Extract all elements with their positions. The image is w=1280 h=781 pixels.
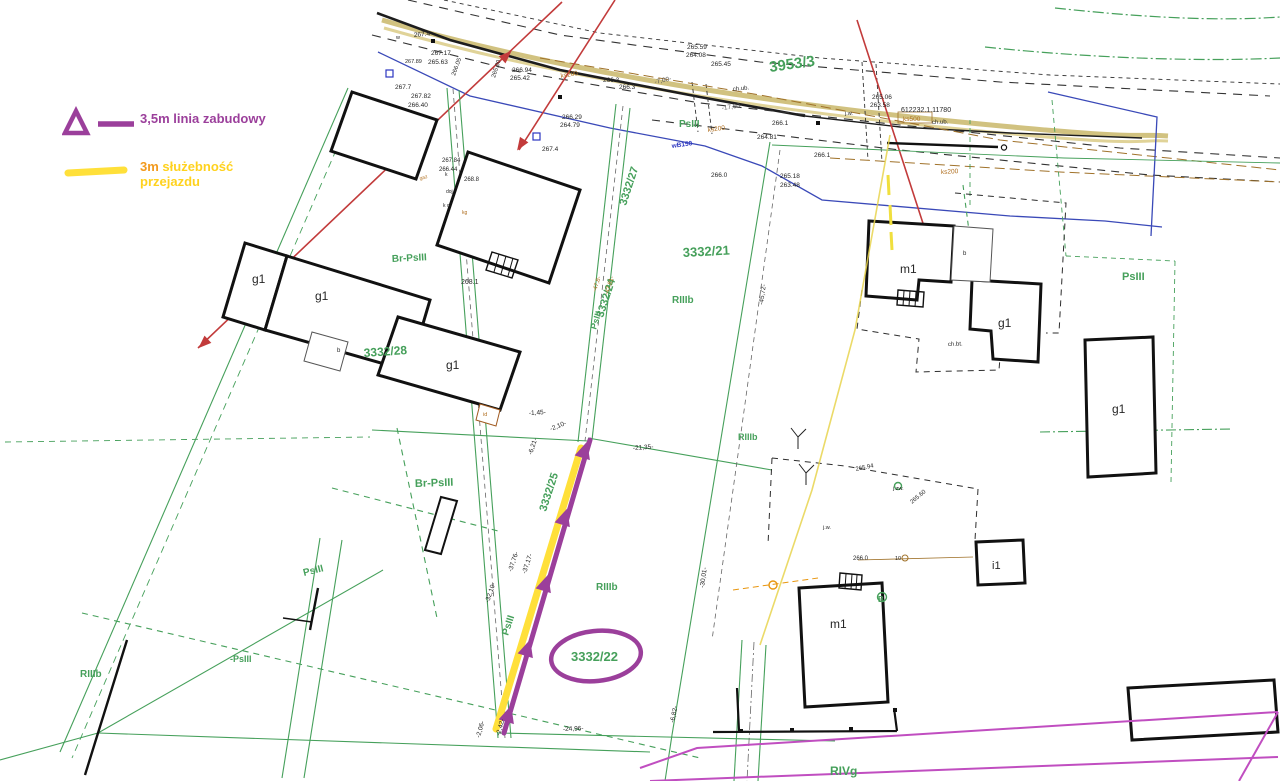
map-label: doj. — [446, 189, 454, 195]
map-label: PsIII — [588, 310, 603, 331]
map-label: 266.40 — [408, 102, 428, 109]
utility-symbols — [733, 135, 973, 645]
map-label: 266.0 — [711, 172, 728, 179]
map-label: 267.82 — [411, 93, 431, 100]
buildings — [223, 92, 1278, 740]
map-label: g1 — [446, 358, 460, 372]
map-label: 265.94 — [855, 463, 875, 473]
map-label: -30,01- — [699, 567, 709, 588]
map-label: w — [395, 35, 400, 41]
map-label: 266.1 — [814, 152, 831, 159]
map-label: -45,72- — [758, 284, 768, 305]
map-label: kg — [462, 210, 468, 216]
map-label: j.zw. — [892, 486, 904, 492]
map-label: gaz — [419, 174, 429, 182]
map-label: RIIIb — [596, 582, 618, 593]
map-label: 265.42 — [510, 75, 530, 82]
map-label: RIIIb — [738, 432, 758, 442]
map-label: 263.58 — [870, 102, 890, 109]
map-label: RIIIb — [80, 669, 102, 680]
map-label: PsIII — [1122, 271, 1145, 283]
map-label: 266.44 — [439, 167, 458, 173]
map-label: 265.60 — [909, 489, 927, 506]
legend-row-building-line: 3,5m linia zabudowy — [62, 103, 292, 137]
map-label: i1 — [992, 560, 1001, 572]
legend-servitude-word2: przejazdu — [140, 174, 200, 189]
map-label: k o — [443, 203, 450, 209]
map-label: 264.81 — [757, 134, 777, 141]
map-label: Br-PsIII — [415, 477, 454, 490]
map-label: RIVg — [830, 764, 857, 778]
map-label: 266.94 — [512, 67, 532, 74]
map-label: PsIII — [302, 563, 325, 579]
building — [799, 583, 888, 707]
map-label: 267.89 — [405, 59, 422, 65]
map-label: j.w. — [844, 111, 853, 117]
map-label: 266.29 — [562, 114, 582, 121]
legend-servitude-word: służebność — [162, 159, 233, 174]
map-label: ch.ub. — [932, 119, 949, 126]
map-label: -1,45- — [529, 409, 546, 417]
map-label: 267.17 — [431, 50, 451, 57]
map-label: 266.3 — [619, 84, 636, 91]
map-label: 3332/22 — [571, 649, 618, 664]
legend: 3,5m linia zabudowy 3m służebność przeja… — [62, 103, 292, 215]
legend-servitude-3m: 3m — [140, 159, 159, 174]
map-label: 10 — [895, 556, 901, 562]
building — [866, 221, 954, 300]
map-label: j.w. — [822, 525, 831, 531]
map-label: -6,21- — [527, 437, 539, 455]
map-label: ch.bt. — [948, 341, 963, 348]
map-label: RIIIb — [672, 295, 694, 306]
building — [1128, 680, 1278, 740]
map-label: 266.0 — [853, 556, 869, 562]
map-label: -24,96- — [563, 725, 584, 733]
servitude-swatch-icon — [62, 159, 140, 193]
map-label: 264.08 — [686, 52, 706, 59]
building — [425, 497, 457, 554]
map-label: PsIII — [679, 119, 700, 130]
map-label: 266.3 — [603, 77, 620, 84]
building — [437, 152, 580, 283]
map-label: -2,10- — [549, 420, 567, 433]
map-label: -6,82- — [669, 705, 679, 723]
map-label: 267.84 — [442, 158, 461, 164]
green-roadside-dashdot — [985, 8, 1280, 60]
map-label: -2,06- — [475, 720, 486, 738]
map-label: 263.48 — [780, 182, 800, 189]
map-label: 265.06 — [872, 94, 892, 101]
map-label: -17,60- — [721, 102, 742, 112]
map-label: B — [878, 595, 884, 604]
map-label: 265.59 — [687, 44, 707, 51]
map-label: 268.8 — [464, 177, 480, 183]
map-label: g1 — [252, 272, 266, 286]
map-label: ks200 — [707, 125, 726, 134]
map-label: 266.05 — [451, 57, 463, 77]
map-label: ks200 — [941, 168, 959, 176]
map-label: -21,35- — [633, 444, 654, 452]
map-label: g1 — [315, 289, 329, 303]
map-label: g1 — [1112, 402, 1126, 416]
map-label: -37,17- — [521, 553, 534, 575]
map-label: id — [483, 412, 487, 418]
legend-building-line-label: 3,5m linia zabudowy — [140, 103, 266, 126]
tree-symbols — [791, 428, 814, 485]
map-label: 266.1 — [772, 120, 789, 127]
map-label: 265.18 — [780, 173, 800, 180]
map-label: m1 — [830, 617, 847, 631]
legend-row-servitude: 3m służebność przejazdu — [62, 159, 292, 193]
map-label: wB150 — [670, 140, 693, 150]
map-label: ks500 — [903, 116, 921, 123]
map-label: 268.1 — [461, 279, 479, 286]
map-label: 612232.1.11780 — [901, 107, 951, 114]
cadastral-map-page: 3953/33332/213332/223332/283332/273332/2… — [0, 0, 1280, 781]
map-label: 267.7 — [395, 84, 412, 91]
map-label: 265.45 — [711, 61, 731, 68]
map-label: 3332/21 — [682, 243, 730, 260]
map-label: 265.63 — [428, 59, 448, 66]
map-label: 267.4 — [542, 146, 559, 153]
map-label: m1 — [900, 262, 917, 276]
map-label: -PsIII — [230, 654, 252, 664]
map-label: PsIII — [500, 614, 517, 637]
building-line-swatch-icon — [62, 103, 140, 137]
map-label: -37,76- — [507, 551, 520, 573]
map-label: -47,8- — [592, 276, 603, 293]
legend-servitude-label: 3m służebność przejazdu — [140, 159, 233, 189]
map-label: Br-PsIII — [392, 252, 428, 265]
map-label: ch.ub. — [733, 85, 750, 93]
map-label: 3332/25 — [537, 471, 561, 513]
map-label: g1 — [998, 316, 1012, 330]
map-label: 264.79 — [560, 122, 580, 129]
map-label: 267.4 — [414, 31, 431, 39]
map-label: 3953/3 — [768, 53, 816, 76]
map-label: 265.80 — [491, 59, 503, 79]
